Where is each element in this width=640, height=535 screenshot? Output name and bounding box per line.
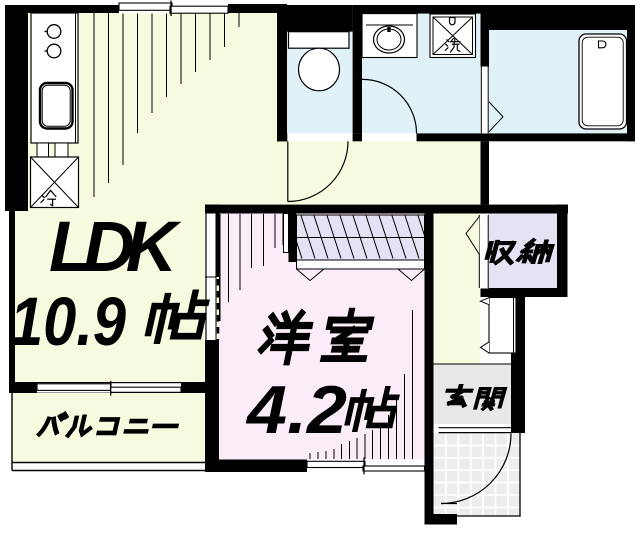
- svg-text:4.2: 4.2: [245, 372, 347, 448]
- svg-text:LDK: LDK: [49, 208, 182, 287]
- svg-text:10.9: 10.9: [10, 283, 127, 360]
